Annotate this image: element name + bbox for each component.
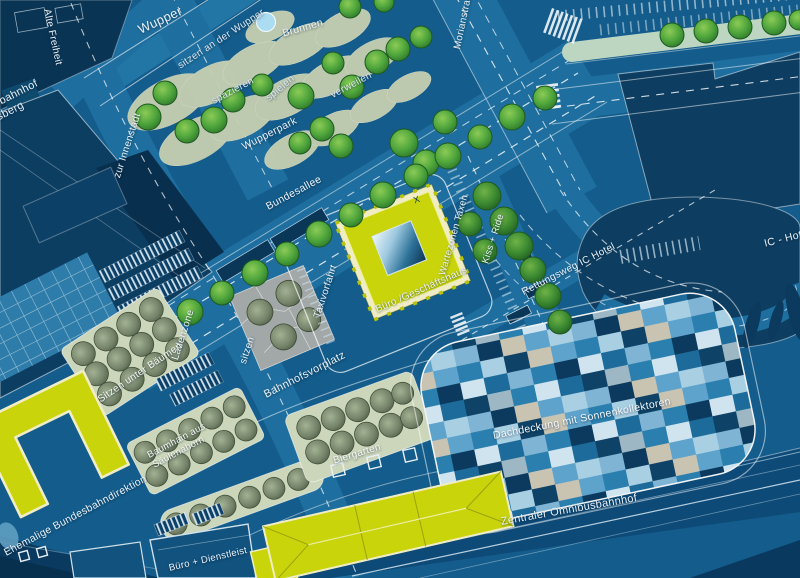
site-plan-map: Wupper Alte Freiheit sitzen an der Wuppe… [0,0,800,578]
